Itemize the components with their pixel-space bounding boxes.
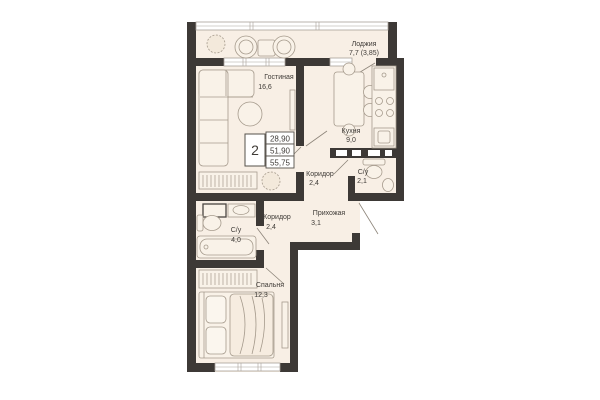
room-area-corridor-upper: 2,4 — [309, 180, 319, 187]
room-area-kitchen: 9,0 — [346, 137, 356, 144]
dining-table-icon — [334, 72, 364, 126]
wardrobe-icon — [199, 172, 257, 189]
drain-icon — [204, 245, 208, 249]
plant-icon — [262, 172, 280, 190]
toilet-tank-icon — [197, 215, 203, 231]
floor-plan-canvas: 2 28,90 51,90 55,75 Лоджия 7,7 (3,85) Го… — [0, 0, 600, 400]
room-label-bath-small: С/у — [358, 169, 369, 176]
chair-icon — [343, 63, 355, 75]
area-value-2: 51,90 — [270, 147, 291, 156]
toilet-tank-icon — [363, 159, 385, 165]
wall-bedroom-bottom-left — [187, 363, 215, 372]
wall-hallway-bottom — [290, 242, 360, 250]
loggia-chair-icon — [239, 40, 253, 54]
room-area-hallway: 3,1 — [311, 220, 321, 227]
faucet-icon — [382, 73, 386, 77]
room-label-hallway: Прихожая — [313, 210, 346, 217]
wall-bedroom-right — [290, 242, 298, 372]
wall-bath-small-left — [348, 176, 355, 193]
pillow-icon — [206, 296, 226, 323]
room-label-corridor-lower: Коридор — [263, 214, 291, 221]
tv-unit-icon — [290, 90, 295, 130]
area-value-3: 55,75 — [270, 159, 291, 168]
area-value-1: 28,90 — [270, 135, 291, 144]
wall-bedroom-top — [187, 260, 264, 268]
dresser-icon — [282, 302, 288, 348]
loggia-chair-icon — [277, 40, 291, 54]
wall-living-bottom — [187, 193, 303, 201]
room-area-corridor-lower: 2,4 — [266, 224, 276, 231]
sofa-icon — [199, 70, 228, 166]
room-area-bath-small: 2,1 — [357, 178, 367, 185]
wall-living-kitchen-upper — [296, 66, 304, 146]
wardrobe-icon — [199, 270, 257, 288]
coffee-table-icon — [238, 102, 262, 126]
room-label-kitchen: Кухня — [342, 128, 361, 135]
room-area-living: 16,6 — [258, 84, 272, 91]
area-summary-table: 2 28,90 51,90 55,75 — [245, 132, 294, 168]
wall-right-outer — [396, 58, 404, 201]
room-area-bath-large: 4,0 — [231, 237, 241, 244]
pillow-icon — [206, 327, 226, 354]
kitchen-sink-icon — [374, 68, 394, 90]
washing-machine-icon — [203, 204, 226, 217]
room-area-loggia: 7,7 (3,85) — [349, 50, 379, 57]
rooms-count: 2 — [251, 142, 259, 158]
room-label-loggia: Лоджия — [352, 41, 377, 48]
room-label-bath-large: С/у — [231, 227, 242, 234]
wall-bedroom-bottom-right — [280, 363, 298, 372]
wall-loggia-bottom-left — [196, 58, 224, 66]
blanket-icon — [230, 294, 273, 356]
toilet-icon — [366, 166, 382, 179]
room-area-bedroom: 12,3 — [254, 292, 268, 299]
room-label-bedroom: Спальня — [256, 282, 284, 289]
toilet-icon — [203, 216, 221, 231]
floor-plan: 2 28,90 51,90 55,75 Лоджия 7,7 (3,85) Го… — [0, 0, 600, 400]
wall-loggia-bottom-mid — [285, 58, 330, 66]
loggia-table-icon — [258, 40, 275, 56]
wall-bath-large-right-top — [256, 193, 264, 226]
room-label-living: Гостиная — [264, 74, 294, 81]
room-label-corridor-upper: Коридор — [306, 171, 334, 178]
wall-bath-small-bottom — [348, 193, 404, 201]
plant-icon — [207, 35, 225, 53]
sink-icon — [383, 179, 394, 192]
oven-icon-inner — [378, 131, 390, 143]
sink-icon — [233, 206, 249, 215]
